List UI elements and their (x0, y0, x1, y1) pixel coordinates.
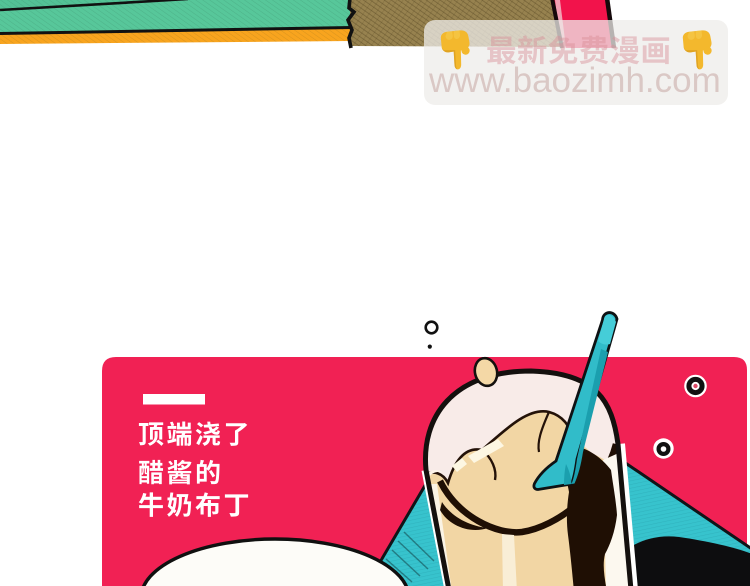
svg-text:www.baozimh.com: www.baozimh.com (428, 61, 721, 100)
